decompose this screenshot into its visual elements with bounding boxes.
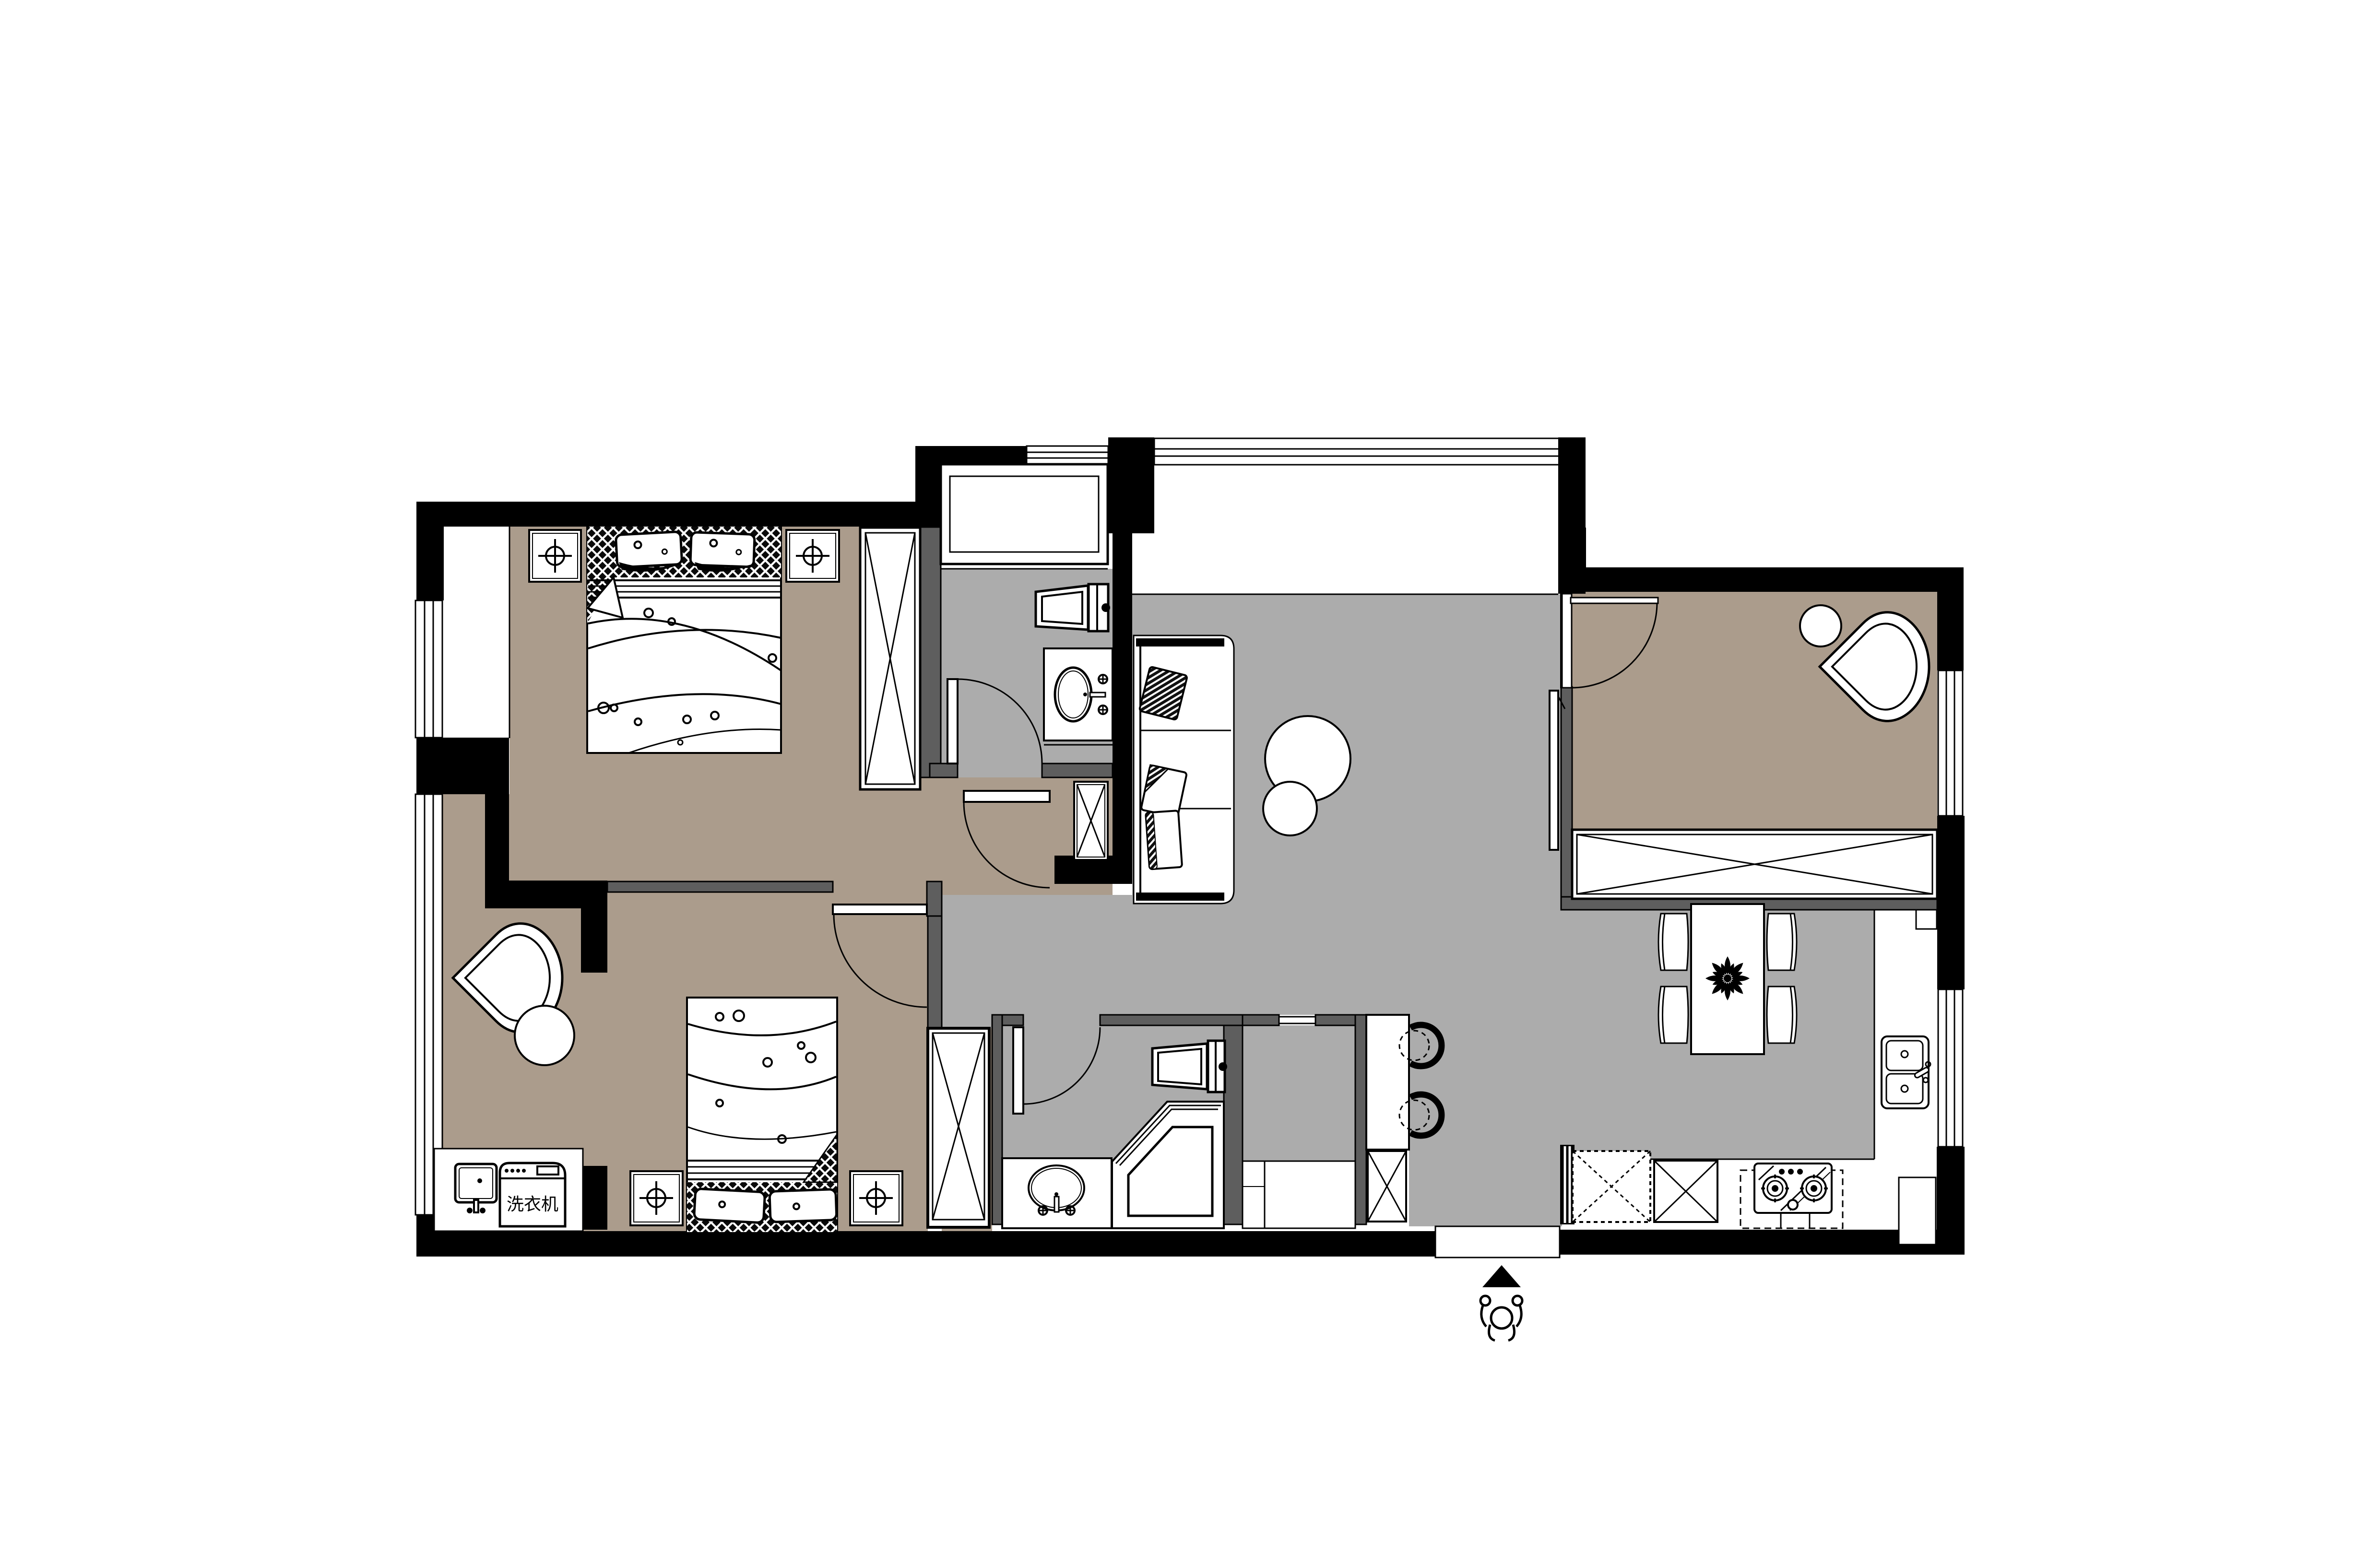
svg-text:洗衣机: 洗衣机 bbox=[507, 1194, 558, 1214]
